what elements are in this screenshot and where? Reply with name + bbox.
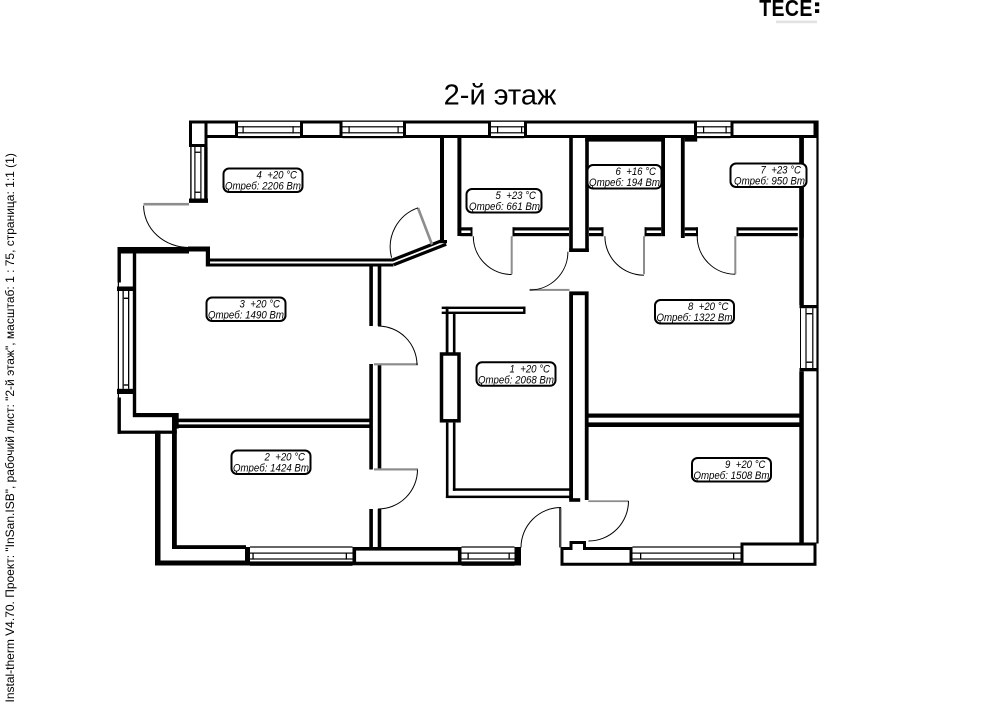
svg-text:TECE: TECE xyxy=(759,0,813,21)
svg-text:2-й этаж: 2-й этаж xyxy=(444,80,557,112)
svg-text:Qтреб: 950 Вт: Qтреб: 950 Вт xyxy=(734,176,805,188)
svg-text:Qтреб: 661 Вт: Qтреб: 661 Вт xyxy=(469,201,540,213)
svg-text:Qтреб: 2206 Вт: Qтреб: 2206 Вт xyxy=(225,181,301,193)
svg-text:Qтреб: 1508 Вт: Qтреб: 1508 Вт xyxy=(694,470,770,482)
svg-text:Qтреб: 194 Вт: Qтреб: 194 Вт xyxy=(589,177,660,189)
svg-text:Qтреб: 1424 Вт: Qтреб: 1424 Вт xyxy=(233,463,309,475)
svg-text:Qтреб: 1322 Вт: Qтреб: 1322 Вт xyxy=(657,312,733,324)
svg-text:Qтреб: 2068 Вт: Qтреб: 2068 Вт xyxy=(478,375,554,387)
svg-text:Instal-therm V4.70. Проект: "I: Instal-therm V4.70. Проект: "InSan.ISB",… xyxy=(3,153,17,702)
svg-text:Qтреб: 1490 Вт: Qтреб: 1490 Вт xyxy=(208,310,284,322)
